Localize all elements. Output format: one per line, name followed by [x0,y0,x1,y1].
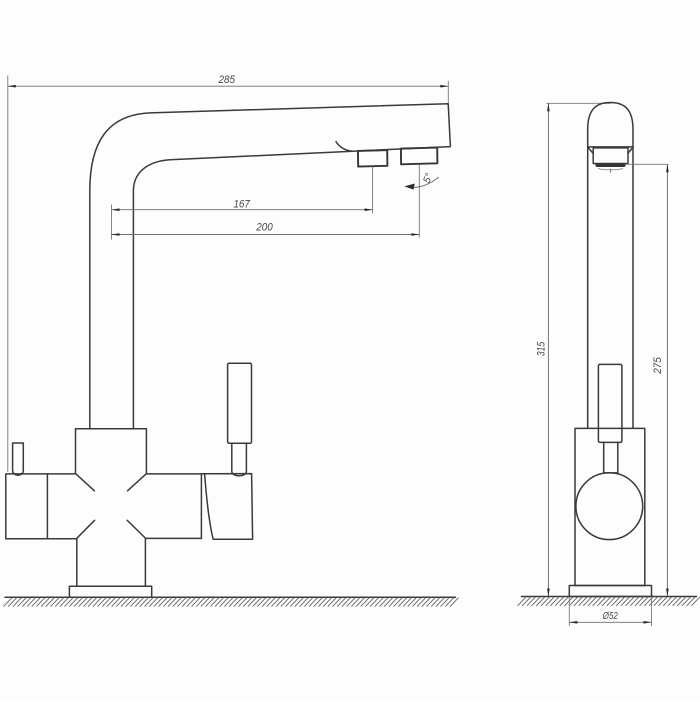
svg-text:Ø52: Ø52 [602,610,618,622]
svg-text:200: 200 [255,222,273,234]
svg-text:285: 285 [218,74,236,86]
svg-text:315: 315 [536,341,548,356]
svg-text:167: 167 [233,198,250,210]
svg-text:275: 275 [652,356,664,374]
